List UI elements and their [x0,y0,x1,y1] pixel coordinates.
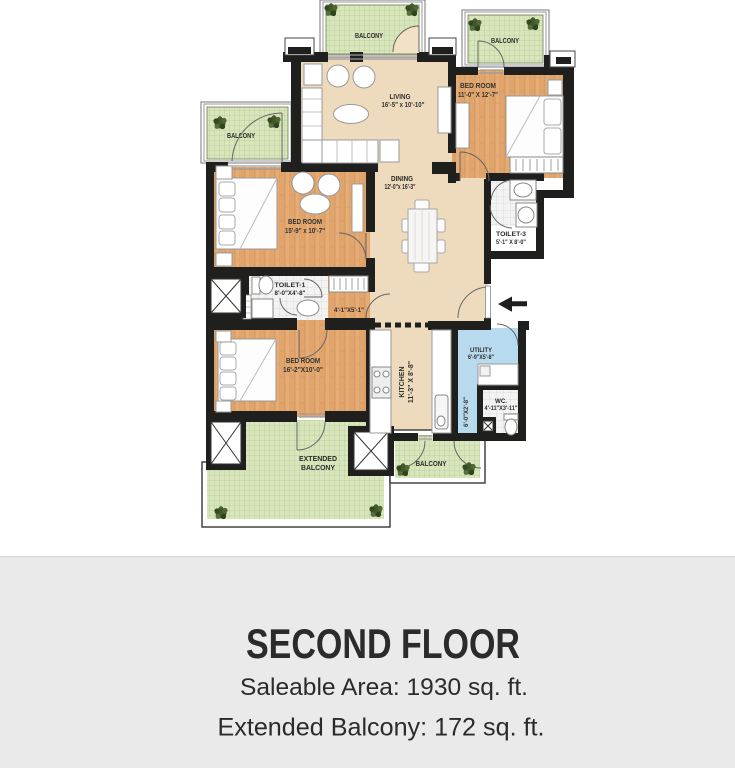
svg-text:8'-0"X4'-8": 8'-0"X4'-8" [275,290,306,297]
svg-text:11'-3" X 8'-8": 11'-3" X 8'-8" [408,361,415,403]
svg-text:16'-2"X10'-0": 16'-2"X10'-0" [283,367,323,374]
svg-text:WC.: WC. [495,399,507,405]
svg-text:TOILET-3: TOILET-3 [496,231,526,238]
svg-text:KITCHEN: KITCHEN [399,366,406,397]
svg-text:5'-1" X 8'-0": 5'-1" X 8'-0" [496,239,526,246]
svg-text:6'-0"X2'-8": 6'-0"X2'-8" [464,397,470,427]
svg-text:TOILET-1: TOILET-1 [275,282,306,289]
svg-text:6'-9"X5'-8": 6'-9"X5'-8" [468,354,494,361]
svg-text:Saleable Area: 1930 sq. ft.: Saleable Area: 1930 sq. ft. [240,674,528,701]
svg-text:Extended Balcony: 172 sq. ft.: Extended Balcony: 172 sq. ft. [218,714,545,742]
svg-text:LIVING: LIVING [390,94,411,101]
svg-text:12'-0"x 16'-3": 12'-0"x 16'-3" [385,184,416,191]
svg-text:11'-0" X 12'-7": 11'-0" X 12'-7" [458,92,498,99]
svg-text:BED ROOM: BED ROOM [288,219,322,226]
svg-text:BED ROOM: BED ROOM [460,83,496,90]
svg-text:BALCONY: BALCONY [416,461,447,468]
svg-text:SECOND FLOOR: SECOND FLOOR [246,620,520,667]
svg-text:DINING: DINING [391,176,413,183]
svg-text:BALCONY: BALCONY [355,33,383,40]
svg-text:15'-9" x 10'-7": 15'-9" x 10'-7" [285,228,325,235]
svg-text:16'-5" x 10'-10": 16'-5" x 10'-10" [382,102,425,109]
svg-text:BALCONY: BALCONY [301,465,335,472]
svg-text:EXTENDED: EXTENDED [299,456,337,463]
svg-text:4'-11"X3'-11": 4'-11"X3'-11" [485,406,518,412]
svg-text:BALCONY: BALCONY [491,38,519,45]
svg-text:BED ROOM: BED ROOM [286,358,320,365]
svg-text:4'-1"X5'-1": 4'-1"X5'-1" [334,307,364,314]
svg-text:UTILITY: UTILITY [470,347,493,354]
